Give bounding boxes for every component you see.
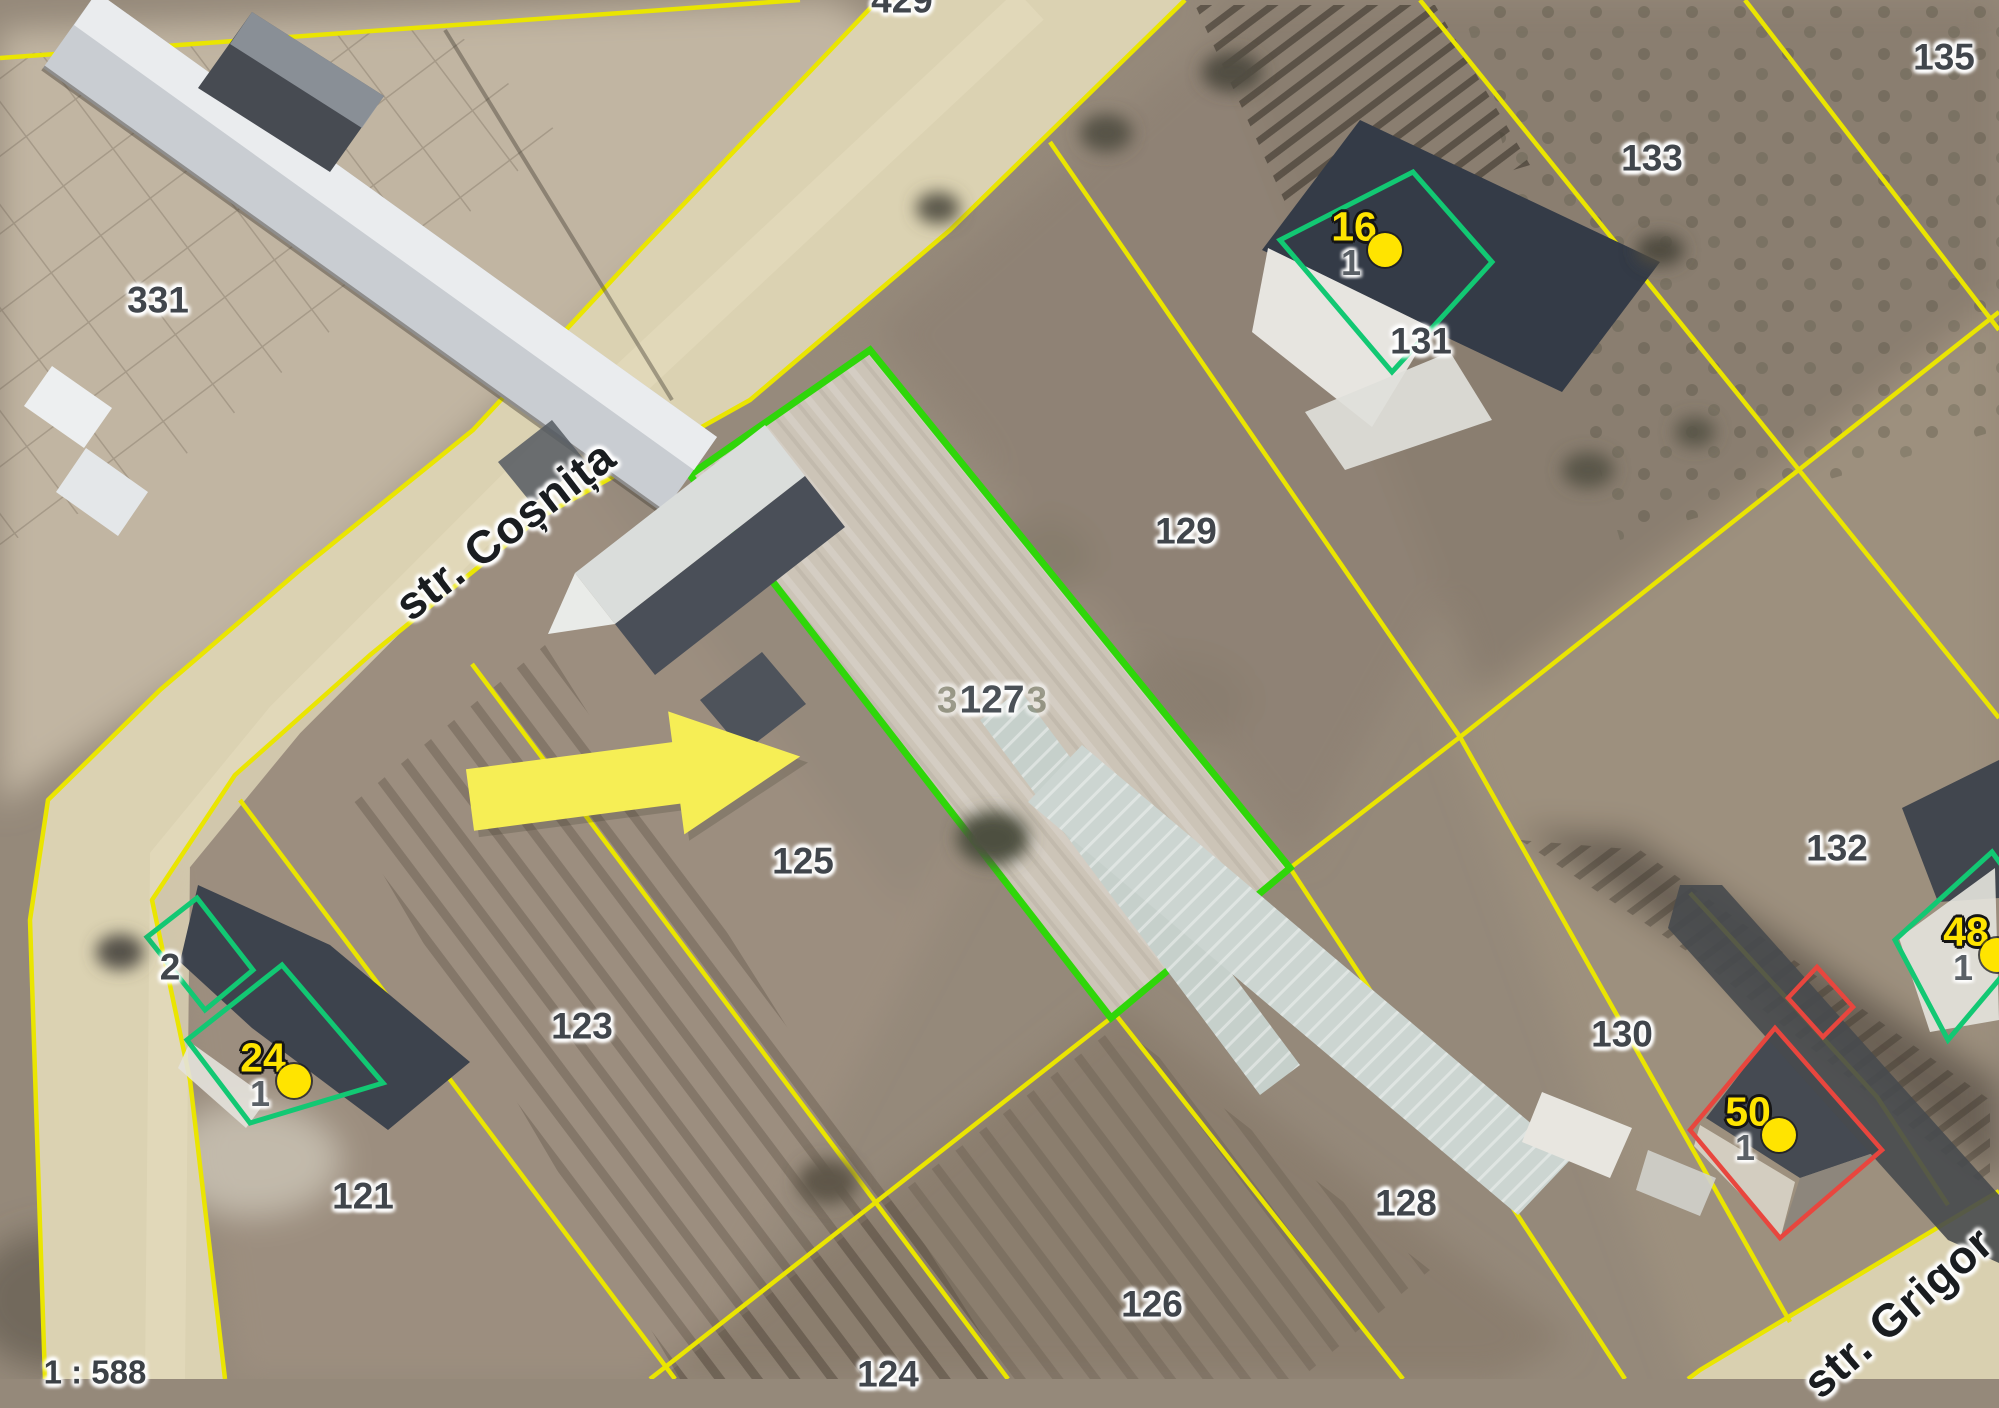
map-canvas[interactable]: 1 : 588 33142913513313112912512312121241… xyxy=(0,0,1999,1379)
satellite-terrain xyxy=(0,0,1999,1379)
